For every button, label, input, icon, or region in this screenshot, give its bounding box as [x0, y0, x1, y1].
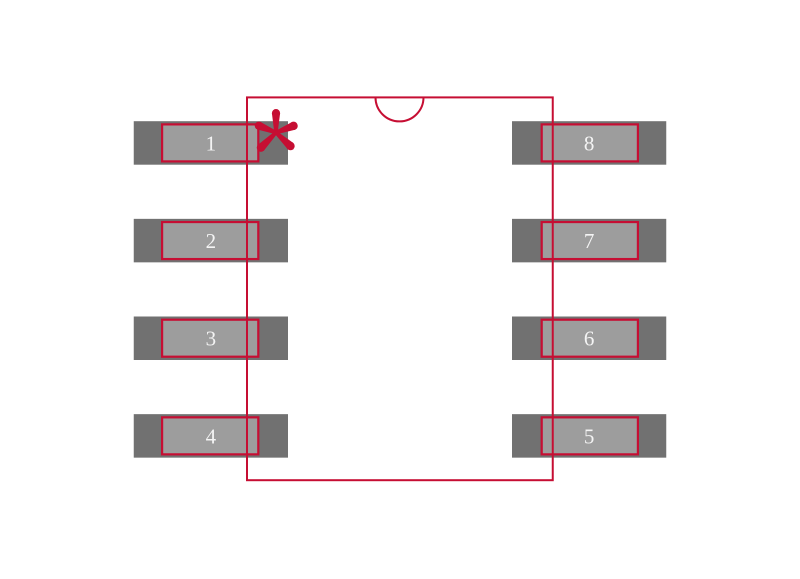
- svg-text:2: 2: [206, 229, 217, 253]
- svg-text:6: 6: [584, 327, 595, 351]
- svg-text:5: 5: [584, 424, 595, 448]
- svg-text:3: 3: [206, 327, 217, 351]
- svg-text:7: 7: [584, 229, 595, 253]
- svg-text:8: 8: [584, 131, 595, 155]
- svg-text:4: 4: [206, 424, 217, 448]
- svg-text:1: 1: [206, 131, 217, 155]
